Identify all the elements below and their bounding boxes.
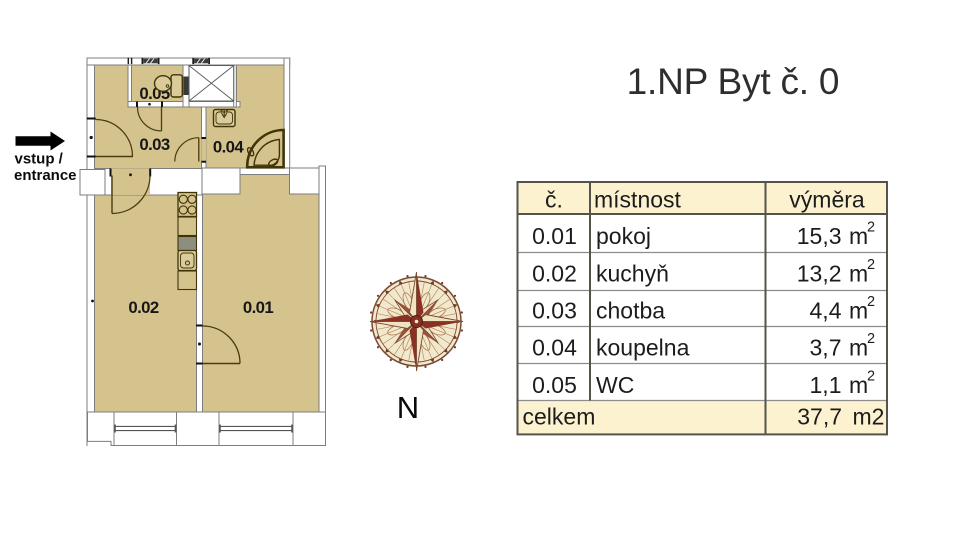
svg-text:chotba: chotba — [596, 298, 665, 324]
svg-text:2: 2 — [867, 257, 875, 273]
svg-text:kuchyň: kuchyň — [596, 261, 669, 287]
svg-text:1.NP Byt č. 0: 1.NP Byt č. 0 — [627, 61, 840, 102]
svg-text:37,7: 37,7 — [797, 404, 842, 430]
svg-text:13,2: 13,2 — [797, 261, 842, 287]
svg-text:2: 2 — [867, 369, 875, 385]
svg-text:místnost: místnost — [594, 186, 682, 212]
svg-text:0.04: 0.04 — [213, 138, 245, 157]
svg-text:m: m — [849, 223, 868, 249]
svg-text:m: m — [849, 298, 868, 324]
svg-text:koupelna: koupelna — [596, 335, 690, 361]
svg-text:WC: WC — [596, 372, 634, 398]
svg-text:výměra: výměra — [789, 186, 865, 212]
svg-text:1,1: 1,1 — [810, 372, 842, 398]
svg-text:2: 2 — [867, 294, 875, 310]
svg-text:2: 2 — [867, 220, 875, 236]
svg-text:2: 2 — [867, 331, 875, 347]
svg-text:4,4: 4,4 — [810, 298, 842, 324]
svg-text:vstup /: vstup / — [15, 151, 64, 168]
svg-text:0.05: 0.05 — [532, 372, 577, 398]
svg-text:0.04: 0.04 — [532, 335, 577, 361]
svg-text:0.03: 0.03 — [532, 298, 577, 324]
svg-text:pokoj: pokoj — [596, 223, 651, 249]
svg-text:0.03: 0.03 — [139, 135, 170, 154]
svg-text:0.02: 0.02 — [532, 261, 577, 287]
svg-text:m2: m2 — [853, 404, 885, 430]
svg-text:15,3: 15,3 — [797, 223, 842, 249]
svg-text:3,7: 3,7 — [810, 335, 842, 361]
svg-text:m: m — [849, 335, 868, 361]
svg-text:m: m — [849, 261, 868, 287]
svg-text:č.: č. — [545, 186, 563, 212]
svg-text:0.02: 0.02 — [128, 298, 159, 317]
svg-text:m: m — [849, 372, 868, 398]
svg-text:0.01: 0.01 — [532, 223, 577, 249]
svg-text:N: N — [397, 390, 419, 425]
svg-text:0.01: 0.01 — [243, 298, 274, 317]
svg-text:entrance: entrance — [14, 167, 77, 184]
svg-text:celkem: celkem — [523, 404, 596, 430]
